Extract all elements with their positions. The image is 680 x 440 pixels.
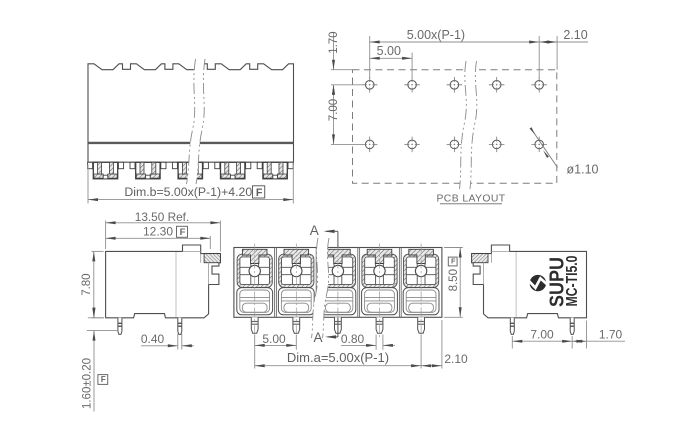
svg-text:F: F [256, 187, 263, 199]
svg-text:PCB LAYOUT: PCB LAYOUT [436, 194, 505, 205]
svg-text:F: F [180, 227, 186, 238]
svg-text:MC-TI5.0: MC-TI5.0 [564, 255, 581, 306]
svg-text:A: A [310, 223, 319, 238]
svg-text:1.60±0.20: 1.60±0.20 [81, 358, 93, 409]
svg-text:Dim.b=5.00x(P-1)+4.20: Dim.b=5.00x(P-1)+4.20 [124, 185, 252, 199]
svg-text:Dim.a=5.00x(P-1): Dim.a=5.00x(P-1) [287, 350, 389, 365]
svg-text:F: F [101, 374, 106, 384]
svg-text:0.80: 0.80 [341, 332, 365, 346]
svg-text:1.70: 1.70 [599, 327, 623, 341]
svg-text:8.50: 8.50 [448, 269, 460, 291]
svg-text:7.80: 7.80 [81, 273, 93, 295]
svg-text:13.50 Ref.: 13.50 Ref. [135, 210, 189, 224]
svg-text:2.10: 2.10 [444, 352, 468, 366]
svg-text:F: F [451, 257, 456, 266]
svg-text:5.00: 5.00 [262, 332, 286, 346]
svg-text:2.10: 2.10 [563, 28, 587, 42]
svg-text:1.70: 1.70 [328, 31, 340, 53]
svg-text:12.30: 12.30 [143, 225, 173, 239]
svg-text:7.00: 7.00 [328, 99, 340, 121]
svg-text:5.00: 5.00 [377, 44, 401, 58]
svg-text:ø1.10: ø1.10 [567, 163, 599, 177]
svg-text:A: A [313, 330, 322, 345]
svg-text:5.00x(P-1): 5.00x(P-1) [407, 28, 465, 42]
svg-text:7.00: 7.00 [530, 327, 554, 341]
svg-text:0.40: 0.40 [141, 332, 165, 346]
